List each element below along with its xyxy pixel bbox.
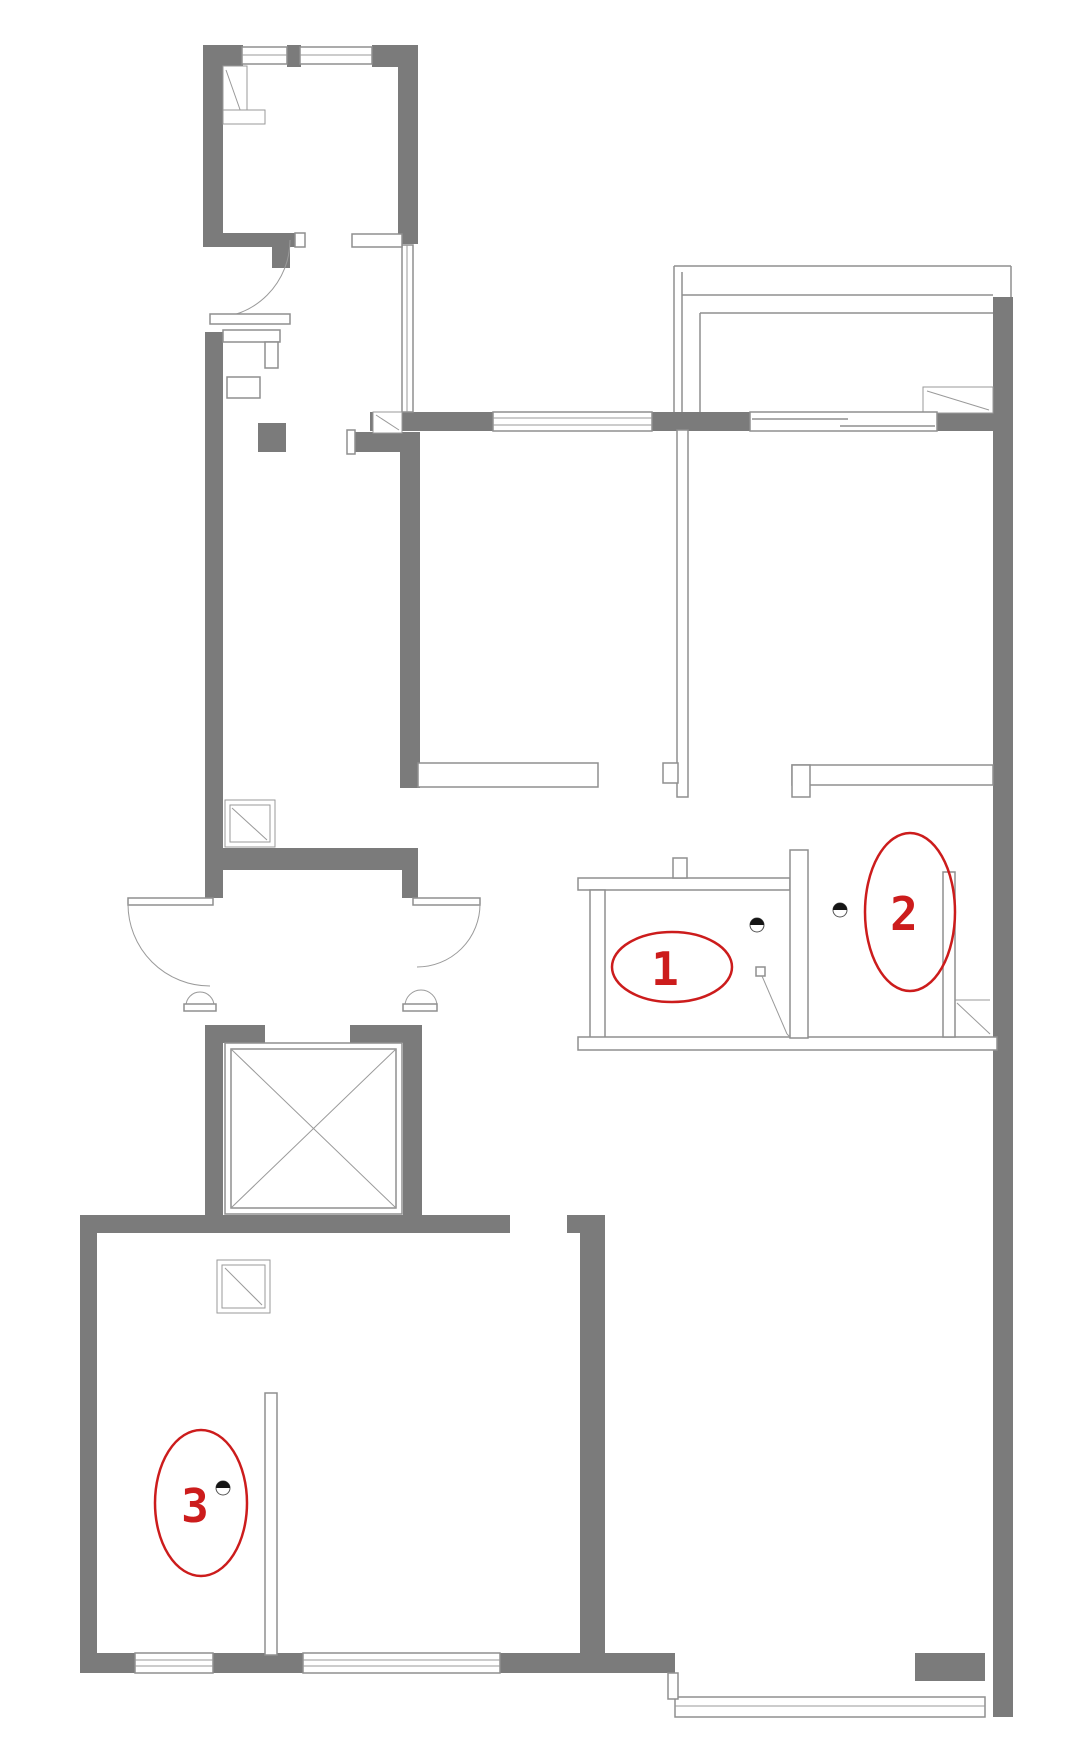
window (242, 47, 287, 64)
window (300, 47, 372, 64)
sliding-door (750, 412, 937, 431)
partition-layer (223, 233, 997, 1655)
annotation-label-3: 3 (181, 1479, 209, 1533)
window (135, 1653, 213, 1673)
room3-closet (217, 1260, 270, 1313)
windows-layer (135, 47, 985, 1717)
ceiling-light-icon (750, 918, 764, 932)
annotation-label-2: 2 (890, 887, 918, 941)
window-sill (923, 387, 993, 413)
floor-plan-svg: 123 (0, 0, 1080, 1756)
annotation-marker-3: 3 (155, 1430, 247, 1576)
wall-niche (373, 412, 402, 433)
living-bedroom-partition (677, 430, 688, 797)
bath-middle-wall (790, 850, 808, 1038)
living-bottom-wall (418, 763, 598, 787)
ceiling-light-icon (216, 1481, 230, 1495)
annotation-marker-2: 2 (865, 833, 955, 991)
annotation-marker-1: 1 (612, 932, 732, 1002)
room3-partition (265, 1393, 277, 1655)
bath1-left-wall (590, 890, 605, 1038)
window (493, 412, 652, 431)
entry-door-left (128, 898, 216, 1011)
entry-door-right (403, 898, 480, 1011)
window (303, 1653, 500, 1673)
bath1-top-wall (578, 878, 790, 890)
bath1-door (756, 967, 790, 1037)
ceiling-light-icon (833, 903, 847, 917)
walls-layer (80, 45, 1013, 1717)
bedroom-bottom-wall (792, 765, 993, 785)
elevator (225, 1043, 402, 1214)
cabinet (223, 66, 265, 124)
window-connector (668, 1673, 678, 1699)
window (675, 1697, 985, 1717)
duct-shaft (955, 1000, 990, 1034)
window (402, 245, 413, 412)
hall-closet (225, 800, 275, 847)
bath-bottom-wall (578, 1037, 997, 1050)
doors-layer (128, 240, 937, 1037)
floor-plan: 123 (0, 0, 1080, 1756)
annotation-label-1: 1 (651, 942, 679, 996)
